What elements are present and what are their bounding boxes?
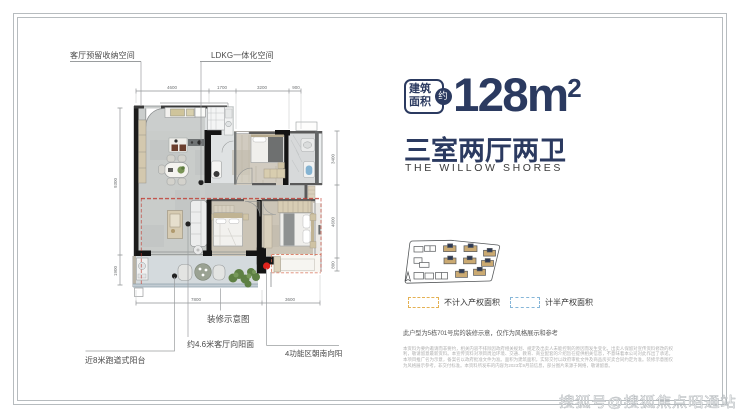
svg-text:900: 900 <box>292 85 300 90</box>
svg-text:1900: 1900 <box>113 265 118 276</box>
svg-text:4600: 4600 <box>167 85 178 90</box>
svg-text:3200: 3200 <box>257 85 268 90</box>
svg-text:9300: 9300 <box>113 177 118 188</box>
svg-text:1700: 1700 <box>217 85 228 90</box>
svg-text:800: 800 <box>331 261 336 269</box>
svg-text:3400: 3400 <box>331 153 336 164</box>
svg-text:7800: 7800 <box>191 297 202 302</box>
svg-text:4600: 4600 <box>331 216 336 227</box>
svg-text:3600: 3600 <box>285 297 296 302</box>
